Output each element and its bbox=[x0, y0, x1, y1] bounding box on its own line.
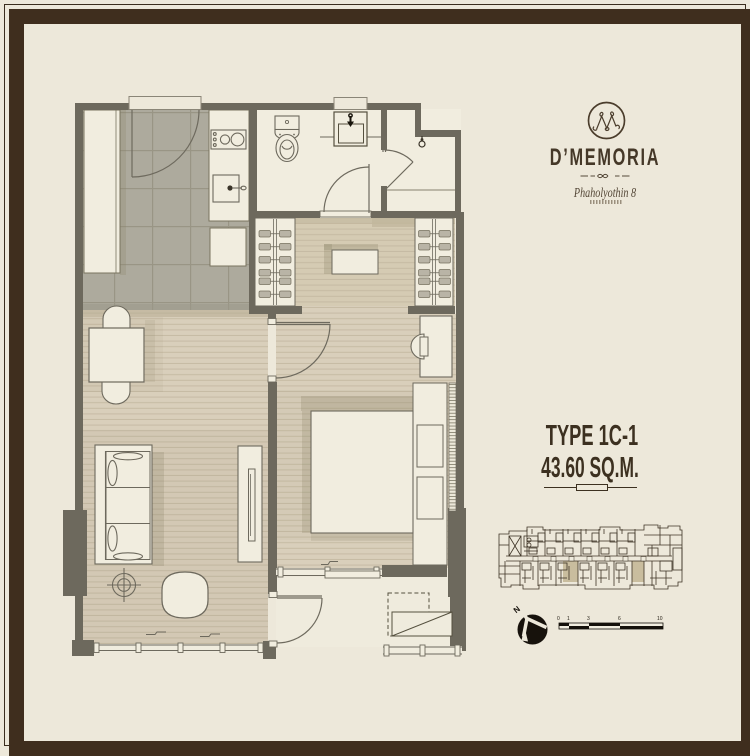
svg-text:1: 1 bbox=[567, 616, 570, 622]
svg-text:3: 3 bbox=[587, 616, 590, 622]
svg-text:6: 6 bbox=[618, 616, 621, 622]
svg-text:0: 0 bbox=[557, 616, 560, 622]
svg-text:10: 10 bbox=[657, 616, 663, 622]
svg-text:N: N bbox=[512, 604, 522, 615]
